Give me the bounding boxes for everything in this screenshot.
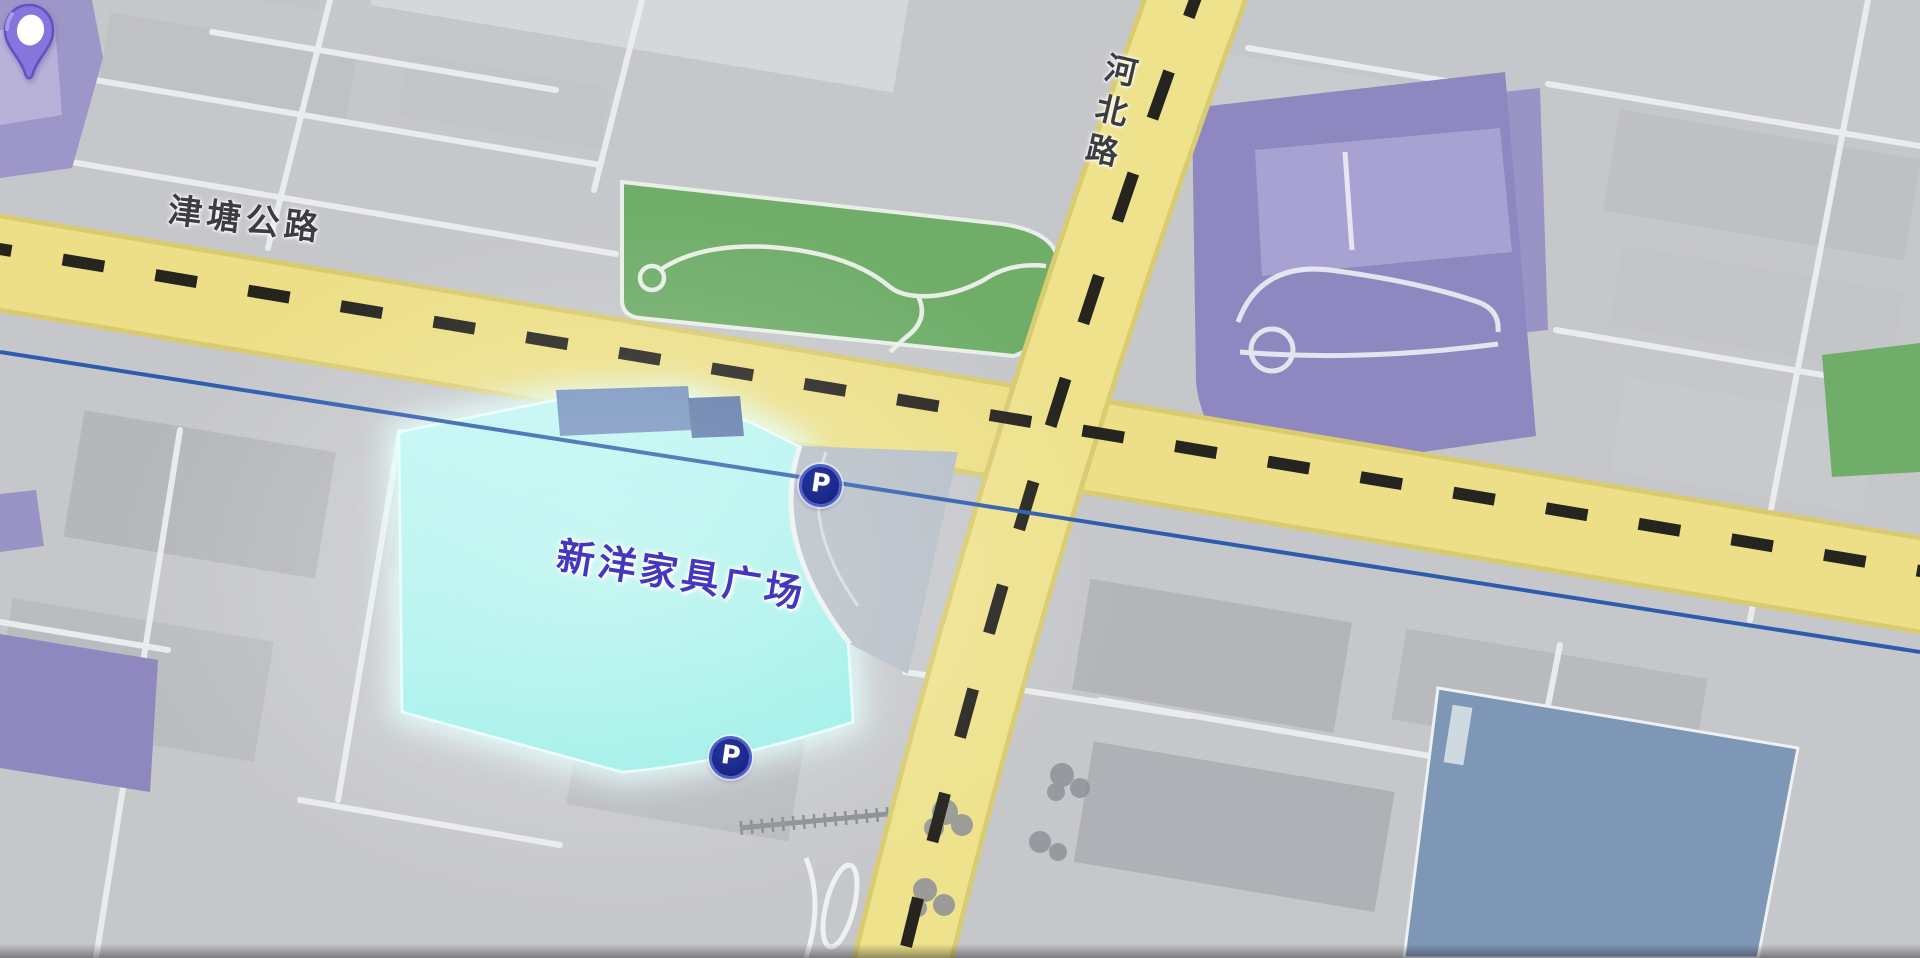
campus-purple [1192,72,1536,478]
basemap-svg [0,0,1920,958]
parking-badge-letter: P [719,740,742,772]
steel-blue-building [1404,688,1798,958]
parking-badge-letter: P [809,468,832,500]
map-canvas[interactable]: 津塘公路 河北路 新洋家具广场 P P [0,0,1920,958]
green-patch [1822,343,1920,477]
location-pin-icon[interactable] [0,0,58,96]
ramp-loop [806,858,864,958]
